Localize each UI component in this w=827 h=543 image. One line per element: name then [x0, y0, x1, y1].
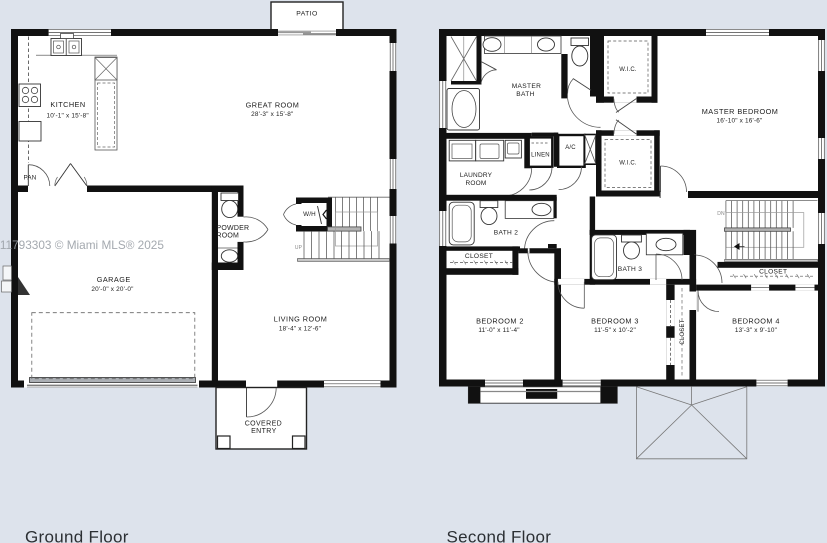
svg-text:POWDER: POWDER	[217, 225, 250, 232]
svg-text:BEDROOM 4: BEDROOM 4	[732, 316, 780, 325]
svg-text:16'-10" x 16'-6": 16'-10" x 16'-6"	[716, 118, 762, 125]
svg-text:BATH 2: BATH 2	[494, 229, 518, 236]
svg-text:UP: UP	[295, 245, 303, 251]
svg-text:W.I.C.: W.I.C.	[619, 67, 637, 73]
svg-text:20'-0" x 20'-0": 20'-0" x 20'-0"	[91, 286, 133, 293]
svg-text:BEDROOM 3: BEDROOM 3	[591, 316, 639, 325]
svg-text:BEDROOM 2: BEDROOM 2	[476, 316, 524, 325]
svg-text:MASTER BEDROOM: MASTER BEDROOM	[702, 107, 778, 116]
svg-text:W.I.C.: W.I.C.	[619, 161, 637, 167]
svg-text:LAUNDRY: LAUNDRY	[460, 172, 493, 179]
svg-text:LINEN: LINEN	[531, 152, 550, 158]
svg-text:Second Floor: Second Floor	[447, 528, 552, 543]
svg-text:CLOSET: CLOSET	[680, 319, 686, 344]
svg-text:A11793303 © Miami MLS® 2025: A11793303 © Miami MLS® 2025	[0, 238, 164, 252]
svg-text:MASTER: MASTER	[512, 83, 542, 90]
svg-text:ROOM: ROOM	[217, 233, 240, 240]
svg-text:ENTRY: ENTRY	[251, 428, 277, 435]
svg-text:PATIO: PATIO	[296, 11, 317, 18]
svg-text:PAN: PAN	[23, 175, 36, 182]
svg-text:CLOSET: CLOSET	[465, 253, 493, 260]
svg-text:BATH 3: BATH 3	[618, 266, 642, 273]
svg-text:KITCHEN: KITCHEN	[50, 100, 85, 109]
svg-text:COVERED: COVERED	[245, 421, 282, 428]
svg-text:ROOM: ROOM	[465, 180, 486, 187]
svg-text:11'-5" x 10'-2": 11'-5" x 10'-2"	[594, 327, 636, 334]
svg-text:DN: DN	[717, 211, 725, 217]
svg-text:11'-0" x 11'-4": 11'-0" x 11'-4"	[478, 327, 519, 334]
svg-text:A/C: A/C	[565, 145, 576, 151]
svg-text:10'-1" x 15'-8": 10'-1" x 15'-8"	[47, 112, 89, 119]
svg-text:13'-3" x 9'-10": 13'-3" x 9'-10"	[735, 327, 777, 334]
svg-text:BATH: BATH	[516, 91, 535, 98]
svg-text:W/H: W/H	[303, 211, 316, 218]
svg-text:18'-4" x 12'-6": 18'-4" x 12'-6"	[279, 325, 321, 332]
svg-text:GREAT ROOM: GREAT ROOM	[246, 100, 300, 109]
svg-text:28'-3" x 15'-8": 28'-3" x 15'-8"	[251, 111, 293, 118]
svg-text:Ground Floor: Ground Floor	[25, 528, 129, 543]
svg-text:LIVING ROOM: LIVING ROOM	[274, 314, 328, 323]
svg-text:GARAGE: GARAGE	[97, 275, 131, 284]
svg-text:CLOSET: CLOSET	[759, 269, 787, 276]
